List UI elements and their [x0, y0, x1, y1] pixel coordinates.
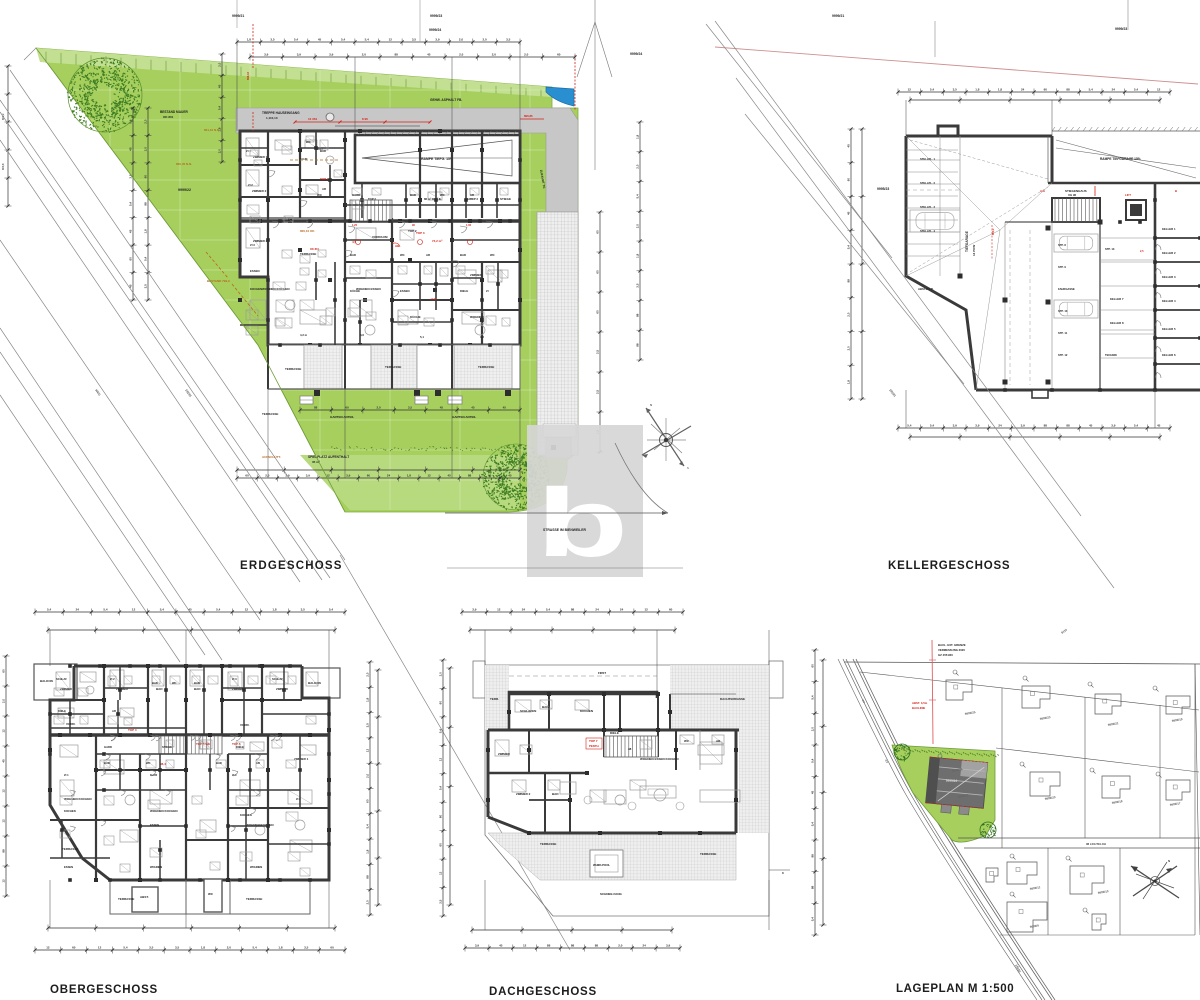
svg-text:ZI 2: ZI 2: [296, 797, 301, 801]
svg-text:TERRASSE: TERRASSE: [62, 847, 78, 851]
svg-text:1,8: 1,8: [278, 946, 283, 950]
svg-text:5,4: 5,4: [930, 424, 935, 428]
svg-text:DIELE: DIELE: [236, 745, 244, 749]
svg-text:45: 45: [218, 84, 222, 88]
svg-text:60: 60: [846, 178, 850, 182]
svg-text:WC: WC: [306, 140, 311, 144]
svg-text:KELLER 2: KELLER 2: [1162, 251, 1176, 255]
svg-text:1,8: 1,8: [407, 474, 412, 478]
svg-text:3,5: 3,5: [149, 946, 154, 950]
svg-text:60: 60: [367, 474, 371, 478]
svg-text:24: 24: [387, 474, 391, 478]
svg-text:60: 60: [1044, 88, 1048, 92]
svg-text:5,4: 5,4: [811, 695, 815, 700]
svg-text:24: 24: [998, 424, 1002, 428]
svg-text:KOCHEN: KOCHEN: [580, 709, 593, 713]
svg-text:2,0: 2,0: [2, 699, 6, 704]
svg-text:24: 24: [1112, 88, 1116, 92]
svg-text:3,5: 3,5: [408, 406, 413, 410]
svg-text:3,9: 3,9: [297, 53, 302, 57]
svg-text:60: 60: [596, 270, 600, 274]
svg-text:BAD: BAD: [152, 681, 158, 685]
svg-text:5,4: 5,4: [216, 608, 221, 612]
svg-text:5,4: 5,4: [439, 786, 443, 791]
svg-text:9999/21: 9999/21: [232, 14, 244, 18]
svg-text:5,4: 5,4: [1134, 88, 1139, 92]
svg-text:13 PKW: 13 PKW: [972, 245, 976, 256]
svg-text:WC: WC: [440, 193, 445, 197]
svg-text:TOP 7: TOP 7: [589, 739, 598, 743]
svg-text:3,9: 3,9: [435, 38, 440, 42]
svg-text:ESSEN: ESSEN: [64, 865, 73, 869]
svg-text:3,5: 3,5: [175, 946, 180, 950]
svg-text:ZI 1: ZI 1: [232, 773, 237, 777]
svg-text:12: 12: [1157, 88, 1161, 92]
svg-text:5,4: 5,4: [123, 946, 128, 950]
svg-text:ESSEN: ESSEN: [250, 269, 259, 273]
svg-text:5,4: 5,4: [128, 119, 132, 124]
svg-text:2,0: 2,0: [438, 672, 442, 677]
svg-text:2,0: 2,0: [483, 38, 488, 42]
svg-text:45: 45: [1157, 424, 1161, 428]
svg-text:VORRAUM: VORRAUM: [372, 235, 388, 239]
svg-text:N: N: [650, 403, 652, 407]
svg-text:ZIMMER 2: ZIMMER 2: [516, 792, 531, 796]
svg-text:WOHNEN KOCHEN: WOHNEN KOCHEN: [64, 797, 92, 801]
svg-text:3,9: 3,9: [264, 53, 269, 57]
svg-text:ESSEN: ESSEN: [400, 289, 409, 293]
svg-text:3,5: 3,5: [304, 946, 309, 950]
svg-text:A-A: A-A: [1040, 189, 1045, 193]
svg-text:88: 88: [636, 313, 640, 317]
svg-text:PENTH.: PENTH.: [589, 744, 599, 748]
svg-text:5,4: 5,4: [546, 608, 551, 612]
svg-text:1,8: 1,8: [247, 38, 252, 42]
svg-text:BAUL. EXT. GRENZE: BAUL. EXT. GRENZE: [938, 643, 966, 647]
svg-text:TOP 2: TOP 2: [368, 197, 376, 201]
svg-text:5,4: 5,4: [438, 729, 442, 734]
svg-text:2,5: 2,5: [1140, 249, 1144, 253]
svg-text:88: 88: [2, 849, 6, 853]
svg-text:5,1: 5,1: [420, 335, 424, 339]
svg-text:TERRASSE: TERRASSE: [540, 842, 556, 846]
svg-text:12: 12: [98, 946, 102, 950]
svg-text:2,0: 2,0: [218, 149, 222, 154]
svg-text:KOCHEN: KOCHEN: [240, 813, 252, 817]
svg-text:2,0: 2,0: [459, 53, 464, 57]
svg-text:SCHLAFEN: SCHLAFEN: [520, 709, 536, 713]
svg-text:60: 60: [144, 175, 148, 179]
svg-text:60: 60: [439, 843, 443, 847]
svg-text:STP. 8: STP. 8: [1058, 243, 1066, 247]
svg-text:ZI 2: ZI 2: [248, 183, 253, 187]
svg-text:ZIMMER: ZIMMER: [60, 687, 73, 691]
svg-text:FAHRGASSE: FAHRGASSE: [1058, 287, 1075, 291]
svg-text:2,0: 2,0: [492, 53, 497, 57]
svg-text:TIEFGARAGE: TIEFGARAGE: [965, 231, 969, 252]
svg-text:TOP 3: TOP 3: [416, 231, 425, 235]
svg-text:TOP 1: TOP 1: [320, 177, 329, 181]
svg-text:ABST. 3,5m: ABST. 3,5m: [912, 701, 928, 705]
svg-text:ABST.: ABST.: [140, 895, 149, 899]
svg-text:5,4: 5,4: [294, 38, 299, 42]
svg-text:60: 60: [488, 474, 492, 478]
svg-text:IM LICHTELOH: IM LICHTELOH: [1086, 842, 1106, 846]
svg-text:b: b: [536, 468, 628, 576]
svg-text:B: B: [1175, 189, 1177, 193]
svg-text:45: 45: [503, 406, 507, 410]
svg-text:60: 60: [557, 53, 561, 57]
svg-text:RAMPE TIEFG. 15%: RAMPE TIEFG. 15%: [421, 157, 453, 161]
svg-text:24: 24: [620, 608, 624, 612]
svg-text:TECHNIK: TECHNIK: [1105, 353, 1117, 357]
svg-text:BAD: BAD: [194, 681, 200, 685]
svg-text:60: 60: [439, 701, 443, 705]
svg-text:ZIMMER 3: ZIMMER 3: [253, 239, 268, 243]
svg-text:9999/23: 9999/23: [430, 14, 442, 18]
svg-text:ZI 1: ZI 1: [246, 149, 251, 153]
svg-text:STELLPL. 1: STELLPL. 1: [920, 157, 935, 161]
svg-text:88: 88: [547, 944, 551, 948]
svg-text:RAMPE TIEFGARAGE 15%: RAMPE TIEFGARAGE 15%: [1100, 157, 1141, 161]
svg-text:3,5: 3,5: [270, 38, 275, 42]
svg-text:24: 24: [76, 608, 80, 612]
svg-text:WOHNEN: WOHNEN: [250, 865, 262, 869]
svg-text:BAD: BAD: [460, 253, 466, 257]
svg-text:3,9: 3,9: [1111, 424, 1116, 428]
svg-text:3,5: 3,5: [412, 38, 417, 42]
svg-text:WOHNEN ESSEN KOCHEN: WOHNEN ESSEN KOCHEN: [640, 757, 679, 761]
svg-text:KELLER 8: KELLER 8: [1110, 321, 1124, 325]
svg-text:ESSEN: ESSEN: [150, 823, 159, 827]
svg-text:896,86: 896,86: [524, 114, 533, 118]
svg-text:ERDGESCHOSS: ERDGESCHOSS: [240, 560, 343, 572]
svg-text:60: 60: [72, 946, 76, 950]
svg-text:12: 12: [46, 946, 50, 950]
svg-text:WOHNEN: WOHNEN: [150, 865, 162, 869]
svg-text:5,4: 5,4: [811, 917, 815, 922]
svg-text:KELLER 5: KELLER 5: [1162, 327, 1176, 331]
svg-text:ZI: ZI: [486, 289, 489, 293]
svg-text:88: 88: [635, 343, 639, 347]
svg-text:UG 96: UG 96: [1068, 193, 1077, 197]
svg-text:5,4: 5,4: [907, 424, 912, 428]
svg-text:9999/22: 9999/22: [946, 779, 958, 783]
svg-text:2,0: 2,0: [366, 773, 370, 778]
svg-text:DIELE: DIELE: [610, 731, 619, 735]
svg-text:ZIMMER 2: ZIMMER 2: [252, 189, 267, 193]
svg-text:5,4: 5,4: [366, 824, 370, 829]
svg-text:2,0: 2,0: [811, 727, 815, 732]
svg-text:60: 60: [596, 310, 600, 314]
svg-text:VORR.: VORR.: [66, 722, 76, 726]
svg-text:KELLER 1: KELLER 1: [1162, 227, 1176, 231]
svg-text:88: 88: [144, 202, 148, 206]
svg-text:2,0: 2,0: [218, 62, 222, 67]
svg-text:45: 45: [847, 211, 851, 215]
svg-text:45: 45: [499, 944, 503, 948]
svg-text:3,9: 3,9: [475, 944, 480, 948]
svg-text:3,5: 3,5: [635, 283, 639, 288]
svg-text:3,9: 3,9: [346, 474, 351, 478]
svg-text:AR: AR: [426, 253, 430, 257]
svg-text:STIEGE: STIEGE: [162, 745, 172, 749]
svg-text:88: 88: [1066, 88, 1070, 92]
svg-text:BESTAND MAUER: BESTAND MAUER: [160, 110, 188, 114]
svg-text:60: 60: [669, 608, 673, 612]
svg-text:3,9: 3,9: [1021, 424, 1026, 428]
svg-text:5,4: 5,4: [129, 202, 133, 207]
svg-text:2,0: 2,0: [366, 900, 370, 905]
svg-text:STP. 13: STP. 13: [1105, 247, 1115, 251]
svg-text:88: 88: [1066, 424, 1070, 428]
svg-text:STP. 12: STP. 12: [1058, 353, 1068, 357]
svg-text:2,0: 2,0: [143, 147, 147, 152]
svg-text:TERRASSE: TERRASSE: [478, 365, 494, 369]
svg-text:BAD: BAD: [104, 761, 110, 765]
svg-text:TERRASSE: TERRASSE: [246, 897, 262, 901]
svg-text:88: 88: [314, 406, 318, 410]
svg-text:3,9: 3,9: [666, 944, 671, 948]
svg-text:WC: WC: [400, 253, 405, 257]
svg-text:9999/24: 9999/24: [630, 52, 642, 56]
svg-text:WOHNEN KOCHEN: WOHNEN KOCHEN: [150, 809, 178, 813]
svg-text:BAD: BAD: [552, 792, 559, 796]
svg-text:AR: AR: [256, 761, 260, 765]
svg-text:TERRASSE: TERRASSE: [285, 367, 301, 371]
svg-text:ABSTELLR.: ABSTELLR.: [918, 287, 934, 291]
svg-text:LAGEPLAN M 1:500: LAGEPLAN M 1:500: [896, 983, 1014, 995]
svg-text:ZI 3: ZI 3: [232, 677, 237, 681]
svg-text:60: 60: [345, 406, 349, 410]
svg-text:KÜCHE: KÜCHE: [410, 314, 421, 319]
svg-text:2,0: 2,0: [365, 672, 369, 677]
svg-text:5,4: 5,4: [253, 946, 258, 950]
svg-text:3,8: 3,8: [480, 335, 484, 339]
svg-text:TERRASSE: TERRASSE: [300, 252, 316, 256]
svg-text:3,5: 3,5: [301, 608, 306, 612]
svg-text:45: 45: [128, 229, 132, 233]
svg-text:TERRASSE: TERRASSE: [700, 852, 716, 856]
svg-text:4,2 m: 4,2 m: [300, 333, 308, 337]
svg-text:12: 12: [645, 608, 649, 612]
svg-text:KELLER 4: KELLER 4: [1162, 299, 1176, 303]
svg-text:1,8: 1,8: [143, 229, 147, 234]
svg-text:TOP 4: TOP 4: [128, 728, 137, 732]
svg-text:88: 88: [595, 944, 599, 948]
svg-text:12: 12: [523, 944, 527, 948]
svg-text:45: 45: [188, 608, 192, 612]
svg-text:12: 12: [365, 749, 369, 753]
svg-text:1,8: 1,8: [272, 608, 277, 612]
svg-text:STP. 10: STP. 10: [1058, 309, 1068, 313]
svg-text:+0,00: +0,00: [430, 297, 437, 301]
svg-text:BAULINIE: BAULINIE: [912, 706, 925, 710]
svg-text:1,00: 1,00: [466, 223, 472, 227]
svg-text:9999/23: 9999/23: [1115, 27, 1127, 31]
svg-text:DIELE: DIELE: [58, 709, 66, 713]
svg-text:ZIMMER: ZIMMER: [470, 273, 483, 277]
svg-text:3,9: 3,9: [975, 424, 980, 428]
svg-text:9995/23: 9995/23: [877, 187, 889, 191]
svg-text:AR: AR: [112, 709, 116, 713]
svg-text:3,5: 3,5: [365, 723, 369, 728]
svg-text:2,0: 2,0: [377, 406, 382, 410]
svg-text:BAD: BAD: [320, 149, 326, 153]
svg-text:60: 60: [330, 946, 334, 950]
svg-text:5,4: 5,4: [218, 106, 222, 111]
svg-text:N: N: [1168, 859, 1170, 863]
svg-text:WOHNEN KOCHEN: WOHNEN KOCHEN: [262, 287, 290, 291]
svg-text:2,0: 2,0: [227, 946, 232, 950]
svg-text:801,2: 801,2: [991, 228, 995, 235]
svg-text:GARD: GARD: [104, 745, 112, 749]
svg-text:TERRASSE: TERRASSE: [118, 897, 134, 901]
svg-text:800,8: 800,8: [1, 163, 5, 170]
svg-text:STP. 9: STP. 9: [1058, 265, 1066, 269]
svg-text:801,10 N.N.: 801,10 N.N.: [204, 128, 220, 132]
svg-text:OBERGESCHOSS: OBERGESCHOSS: [50, 984, 158, 996]
svg-text:88: 88: [571, 944, 575, 948]
svg-text:KELLERGESCHOSS: KELLERGESCHOSS: [888, 560, 1010, 572]
svg-text:2,0: 2,0: [846, 312, 850, 317]
svg-text:TERRASSE: TERRASSE: [262, 412, 278, 416]
svg-text:1,8: 1,8: [366, 698, 370, 703]
svg-text:2,0: 2,0: [635, 164, 639, 169]
svg-text:KELLER 7: KELLER 7: [1110, 297, 1124, 301]
svg-text:KÜCHE: KÜCHE: [350, 288, 360, 293]
svg-text:45: 45: [440, 406, 444, 410]
svg-text:9999/24: 9999/24: [429, 28, 441, 32]
svg-text:2,0: 2,0: [524, 53, 529, 57]
svg-text:1,8: 1,8: [998, 88, 1003, 92]
svg-text:KELLER 6: KELLER 6: [1162, 353, 1176, 357]
svg-text:TREPPE HAUSEINGANG: TREPPE HAUSEINGANG: [262, 111, 300, 115]
svg-text:STELLPL. 3: STELLPL. 3: [920, 205, 935, 209]
svg-text:86 m²: 86 m²: [424, 197, 431, 201]
svg-text:5,4: 5,4: [811, 822, 815, 827]
svg-text:2,0: 2,0: [362, 53, 367, 57]
svg-text:FLUR: FLUR: [150, 773, 157, 777]
svg-text:5,4: 5,4: [846, 245, 850, 250]
svg-text:2,0: 2,0: [459, 38, 464, 42]
svg-text:60: 60: [810, 664, 814, 668]
svg-text:BAD: BAD: [216, 761, 222, 765]
svg-text:3,5: 3,5: [144, 284, 148, 289]
svg-text:3,6: 3,6: [360, 333, 364, 337]
svg-text:896,43: 896,43: [246, 72, 250, 80]
svg-text:12: 12: [497, 608, 501, 612]
svg-text:88: 88: [847, 279, 851, 283]
svg-text:88: 88: [1044, 424, 1048, 428]
svg-text:12: 12: [427, 474, 431, 478]
svg-text:2,0: 2,0: [143, 119, 147, 124]
svg-text:GZ 4551/20: GZ 4551/20: [938, 653, 953, 657]
svg-text:5,4: 5,4: [930, 88, 935, 92]
svg-text:5,4: 5,4: [329, 608, 334, 612]
svg-text:24: 24: [643, 944, 647, 948]
svg-text:1,20: 1,20: [352, 223, 358, 227]
svg-text:12: 12: [389, 38, 393, 42]
svg-text:3,5: 3,5: [506, 38, 511, 42]
svg-text:12: 12: [2, 729, 6, 733]
svg-text:12: 12: [2, 879, 6, 883]
svg-text:3,9: 3,9: [953, 424, 958, 428]
svg-text:SCHLAF: SCHLAF: [56, 677, 67, 681]
svg-text:1,8: 1,8: [201, 946, 206, 950]
svg-text:3,5: 3,5: [953, 88, 958, 92]
svg-text:12: 12: [2, 819, 6, 823]
svg-text:60: 60: [245, 474, 249, 478]
svg-text:WOHNEN: WOHNEN: [470, 315, 484, 319]
svg-text:5,4: 5,4: [1089, 88, 1094, 92]
svg-text:45: 45: [2, 759, 6, 763]
svg-text:TERR.: TERR.: [490, 697, 499, 701]
svg-text:STIEGE: STIEGE: [500, 197, 511, 201]
svg-text:800,45 N.N.: 800,45 N.N.: [176, 162, 192, 166]
svg-text:8 96: 8 96: [362, 117, 368, 121]
svg-text:GARTEN ANTEIL: GARTEN ANTEIL: [452, 415, 476, 419]
svg-text:12: 12: [439, 758, 443, 762]
svg-text:5,4: 5,4: [365, 38, 370, 42]
svg-text:24: 24: [522, 608, 526, 612]
svg-text:2,0: 2,0: [618, 944, 623, 948]
svg-text:FIRST: FIRST: [598, 671, 606, 675]
svg-text:5,4: 5,4: [810, 758, 814, 763]
svg-text:45: 45: [471, 406, 475, 410]
svg-text:12: 12: [908, 88, 912, 92]
svg-text:45: 45: [448, 474, 452, 478]
svg-text:60: 60: [438, 814, 442, 818]
svg-text:1,8: 1,8: [975, 88, 980, 92]
svg-text:88: 88: [395, 53, 399, 57]
svg-text:45: 45: [1089, 424, 1093, 428]
svg-text:ZI 3: ZI 3: [250, 243, 255, 247]
svg-text:2,0: 2,0: [635, 224, 639, 229]
svg-text:WC: WC: [146, 761, 151, 765]
svg-text:1,8: 1,8: [846, 380, 850, 385]
svg-text:88: 88: [468, 474, 472, 478]
svg-text:GARD: GARD: [352, 193, 360, 197]
svg-text:1,110,10: 1,110,10: [266, 116, 278, 120]
svg-text:ZI 1: ZI 1: [64, 773, 69, 777]
svg-text:88: 88: [571, 608, 575, 612]
svg-text:10 361: 10 361: [308, 117, 318, 121]
svg-text:3,9: 3,9: [329, 53, 334, 57]
svg-text:BAD: BAD: [350, 253, 356, 257]
svg-text:5,4: 5,4: [1134, 424, 1139, 428]
svg-text:88: 88: [811, 886, 815, 890]
svg-text:BALKON: BALKON: [308, 681, 321, 685]
svg-text:SCHNEE-FANG: SCHNEE-FANG: [600, 892, 623, 896]
svg-text:SPIELPLATZ AUFENTHALT: SPIELPLATZ AUFENTHALT: [308, 455, 349, 459]
svg-text:800,10 OK: 800,10 OK: [300, 229, 315, 233]
svg-text:DIELE: DIELE: [460, 289, 468, 293]
svg-text:88: 88: [810, 854, 814, 858]
svg-text:ZIMMER 1: ZIMMER 1: [253, 155, 268, 159]
svg-text:5,4: 5,4: [160, 608, 165, 612]
svg-text:45: 45: [508, 474, 512, 478]
svg-text:12: 12: [438, 871, 442, 875]
svg-text:5,4: 5,4: [144, 256, 148, 261]
svg-text:60: 60: [596, 230, 600, 234]
svg-text:STP. 11: STP. 11: [1058, 331, 1068, 335]
svg-text:38: 38: [628, 747, 632, 751]
svg-text:3,5: 3,5: [596, 350, 600, 355]
svg-text:3,5: 3,5: [596, 390, 600, 395]
svg-text:KOCHEN: KOCHEN: [250, 287, 262, 291]
svg-text:GARTEN ANTEIL: GARTEN ANTEIL: [330, 415, 354, 419]
